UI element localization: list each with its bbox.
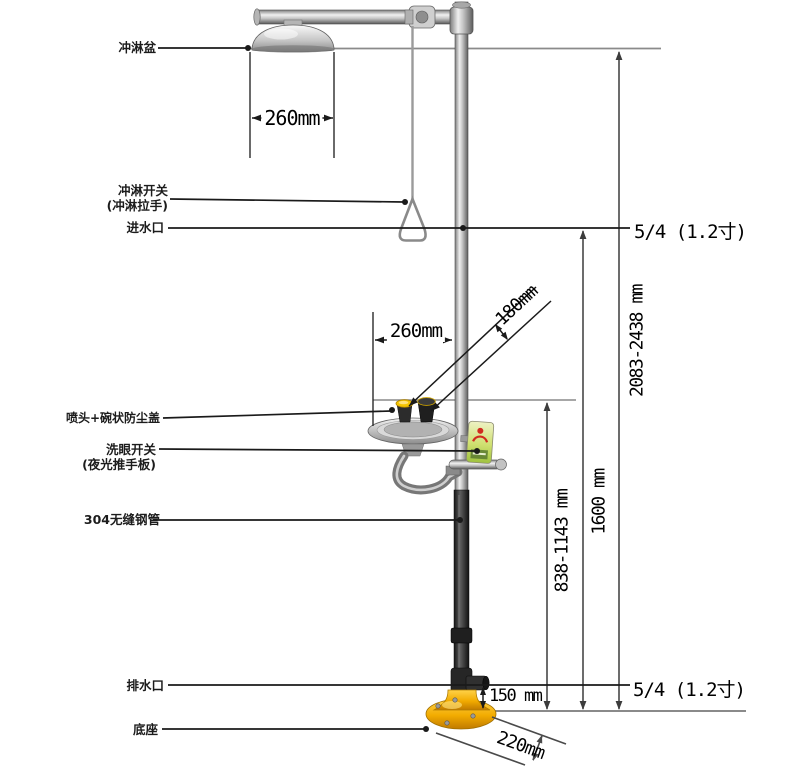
label-drain-outlet: 排水口 (64, 678, 164, 693)
leader-dots (245, 45, 480, 732)
dim-inlet-height: 1600 mm (589, 469, 610, 534)
label-eyewash-switch-line1: 洗眼开关 (36, 442, 156, 457)
shower-valve (405, 6, 435, 28)
label-eyewash-switch-line2: (夜光推手板) (36, 457, 156, 472)
reference-lines (247, 49, 746, 712)
dim-eyewash-bowl-width: 260mm (387, 320, 445, 342)
pull-rod-and-handle (400, 26, 426, 241)
label-shower-switch-line2: (冲淋拉手) (48, 198, 168, 213)
diagram-graphics (0, 0, 790, 766)
height-dimension-lines (547, 52, 619, 709)
leader-lines (153, 48, 630, 729)
base (426, 690, 496, 729)
dim-drain-height: 150 mm (489, 686, 541, 706)
main-pipe (451, 2, 472, 678)
dim-inlet-pipe-size: 5/4 (1.2寸) (634, 217, 746, 244)
dim-shower-head-width: 260mm (261, 106, 322, 130)
label-shower-head: 冲淋盆 (56, 40, 156, 55)
dim-drain-pipe-size: 5/4 (1.2寸) (633, 675, 745, 702)
label-shower-switch-line1: 冲淋开关 (48, 183, 168, 198)
label-water-inlet: 进水口 (64, 220, 164, 235)
shower-head (252, 20, 334, 53)
shower-eyewash-dimension-diagram: 冲淋盆 冲淋开关 (冲淋拉手) 进水口 喷头+碗状防尘盖 洗眼开关 (夜光推手板… (0, 0, 790, 766)
label-shower-switch: 冲淋开关 (冲淋拉手) (48, 183, 168, 213)
dim-eyewash-bowl-height: 838-1143 mm (552, 490, 573, 593)
label-spray-dust-cap: 喷头+碗状防尘盖 (30, 411, 160, 425)
label-base: 底座 (58, 722, 158, 737)
label-steel-pipe: 304无缝钢管 (40, 512, 160, 527)
dim-overall-height: 2083-2438 mm (627, 285, 648, 397)
label-eyewash-switch: 洗眼开关 (夜光推手板) (36, 442, 156, 472)
